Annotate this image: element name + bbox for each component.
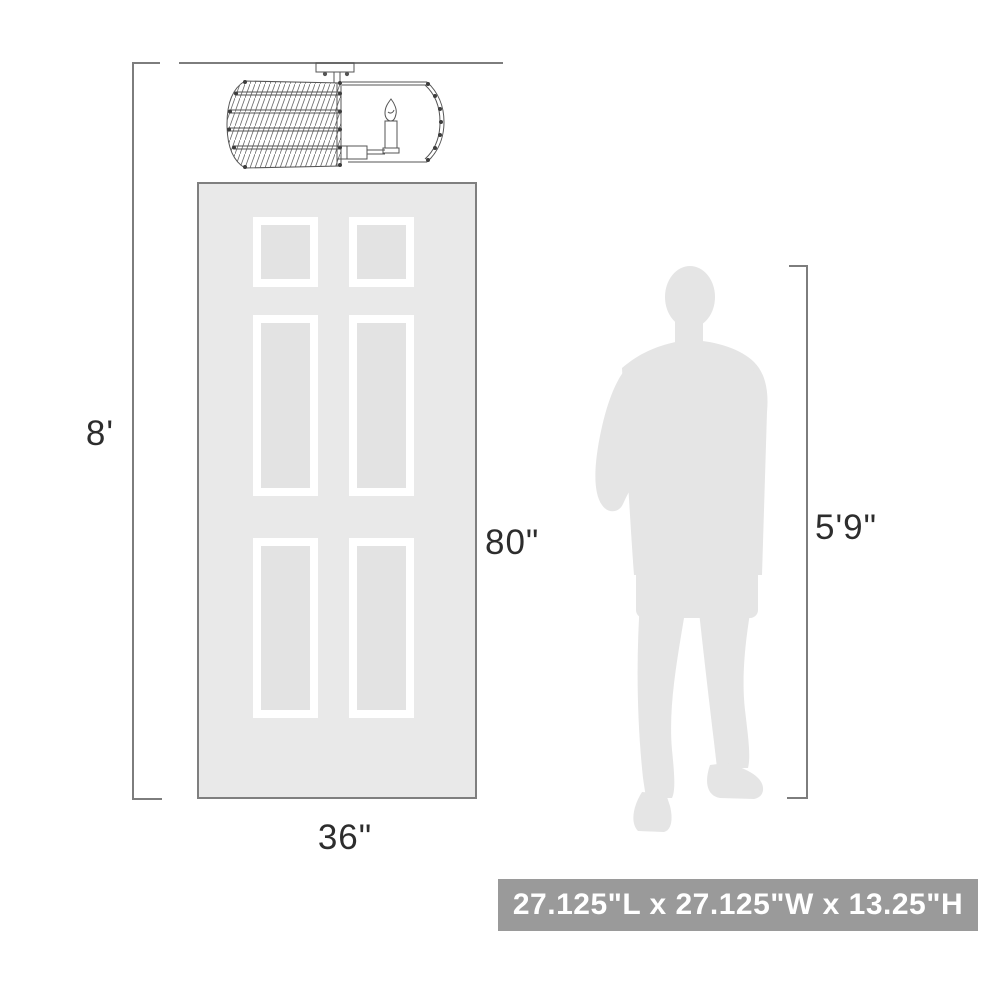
ceiling-height-label: 8' [72, 414, 128, 454]
fixture-dimensions-badge: 27.125"L x 27.125"W x 13.25"H [498, 879, 978, 931]
silhouette-left-shoe [633, 792, 671, 832]
bulb-filament [388, 110, 394, 113]
ceiling-light-fixture-drawing [227, 63, 444, 169]
silhouette-left-leg [638, 602, 686, 798]
scale-diagram: 8' 80" 36" 5'9" 27.125"L x 27.125"W x 13… [0, 0, 1000, 1000]
fixture-top-edge [342, 82, 427, 85]
door-panel-inner [261, 546, 310, 710]
door-slab [198, 183, 476, 798]
fixture-canopy [316, 63, 354, 72]
ceiling-height-dimension-line [133, 63, 162, 799]
door-illustration [198, 183, 476, 798]
door-panel-inner [357, 546, 406, 710]
diagram-artwork [0, 0, 1000, 1000]
candle-bulb [383, 99, 399, 153]
person-height-dimension-line [787, 266, 807, 798]
canopy-screw [323, 72, 326, 75]
bulb-flame [385, 99, 396, 121]
canopy-screw [345, 72, 348, 75]
fixture-arm [337, 146, 385, 159]
person-height-label: 5'9" [815, 508, 877, 548]
arm-bar [367, 150, 385, 154]
silhouette-right-shoe [707, 763, 763, 799]
door-panel-inner [357, 225, 406, 279]
door-panel-inner [357, 323, 406, 488]
fixture-crystal-drum [227, 81, 341, 168]
silhouette-right-leg [698, 602, 752, 768]
candle-sleeve [385, 121, 397, 148]
silhouette-neck [675, 312, 703, 344]
person-silhouette [595, 266, 767, 832]
door-height-label: 80" [485, 523, 539, 563]
door-panel-inner [261, 323, 310, 488]
arc-beads [426, 82, 443, 162]
candle-base [383, 148, 399, 153]
door-panel-inner [261, 225, 310, 279]
door-width-label: 36" [305, 818, 385, 858]
